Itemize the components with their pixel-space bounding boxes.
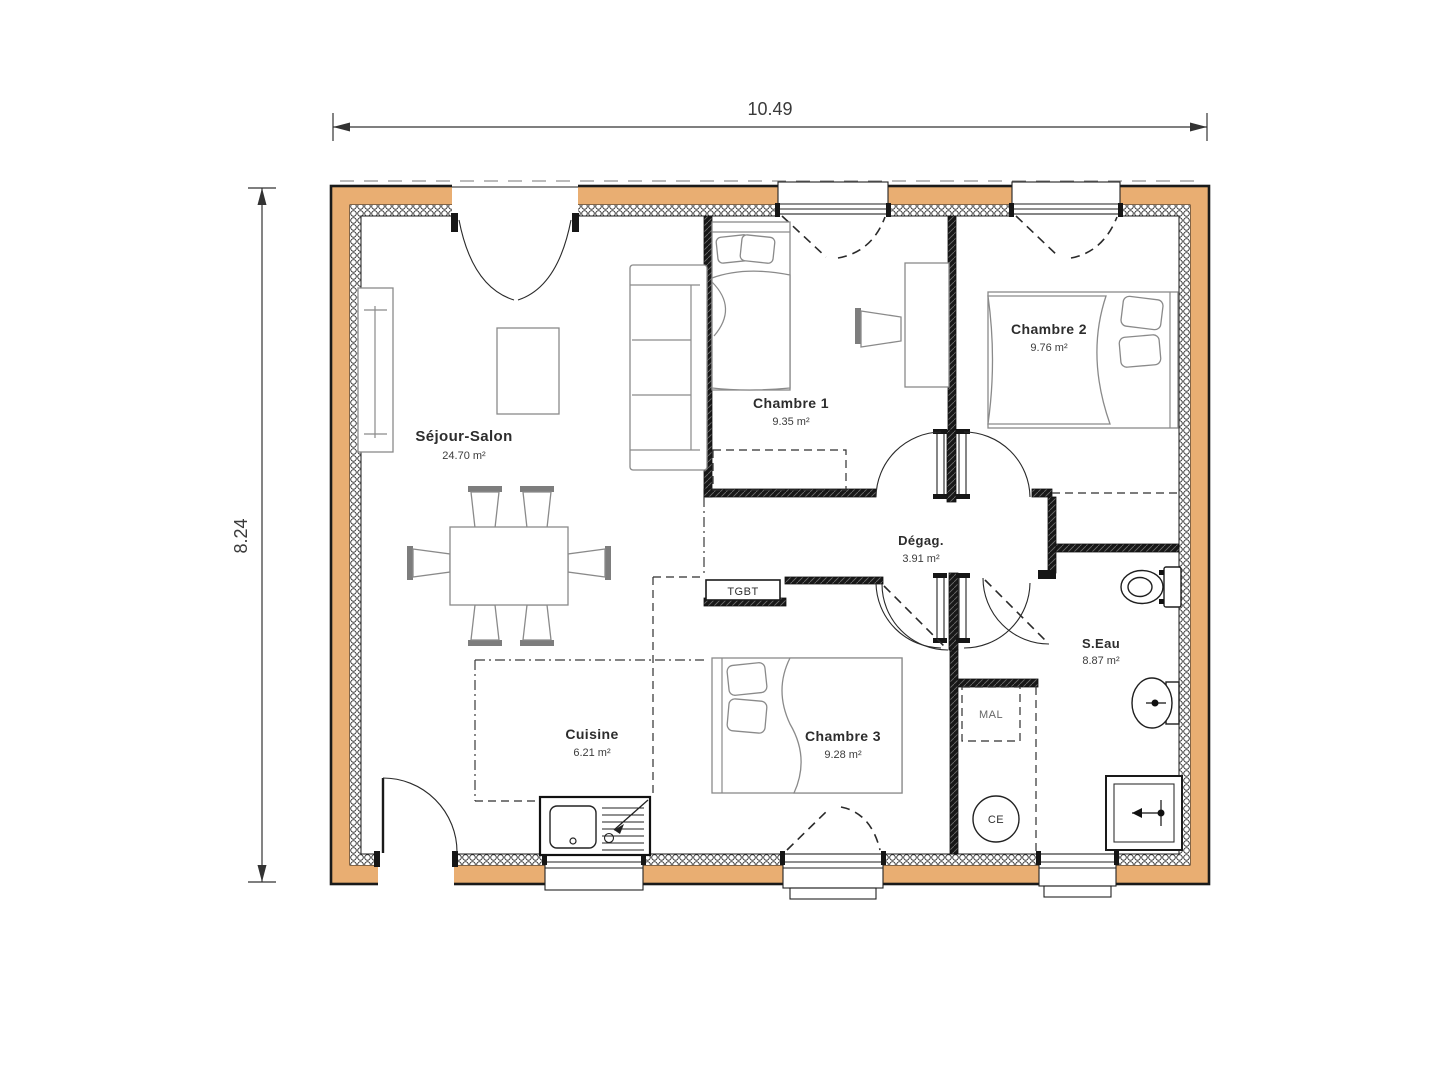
room-name-salle-eau: S.Eau [1082, 636, 1120, 651]
electrical-panel-label: TGBT [727, 586, 758, 598]
chair [468, 605, 502, 646]
dining-table [450, 527, 568, 605]
chair [520, 605, 554, 646]
kitchen-sink-unit [540, 797, 650, 855]
arrow-down-icon [258, 865, 267, 882]
blanket [782, 658, 902, 793]
room-name-sejour: Séjour-Salon [415, 428, 512, 445]
chair [568, 546, 611, 580]
wall-salle-eau-top [1056, 544, 1179, 552]
bed-chambre1 [712, 222, 790, 390]
blanket [988, 296, 1110, 424]
wall-chambre3-salle-eau [950, 650, 958, 854]
chair [520, 486, 554, 528]
bed-chambre3 [712, 658, 902, 793]
washing-machine: MAL [962, 687, 1020, 741]
washing-machine-label: MAL [979, 709, 1003, 721]
exterior-step [1044, 886, 1111, 897]
room-name-chambre2: Chambre 2 [1011, 321, 1087, 337]
room-name-degag: Dégag. [898, 533, 944, 548]
water-heater-label: CE [988, 814, 1004, 826]
electrical-panel: TGBT [706, 580, 780, 600]
room-area-cuisine: 6.21 m² [573, 747, 611, 759]
room-area-sejour: 24.70 m² [442, 450, 486, 462]
door-chambre3 [882, 584, 948, 650]
pillow [740, 234, 776, 263]
wall-degag-salle-eau [1048, 497, 1056, 573]
room-name-chambre3: Chambre 3 [805, 728, 881, 744]
dimension-width: 10.49 [333, 99, 1207, 141]
blanket [712, 271, 790, 390]
shower [1106, 776, 1182, 850]
room-name-cuisine: Cuisine [565, 726, 618, 742]
floor-plan-canvas: 10.49 8.24 [0, 0, 1448, 1080]
room-area-salle-eau: 8.87 m² [1082, 655, 1120, 667]
pillow [727, 662, 768, 696]
chair [407, 546, 450, 580]
floor-plan-drawing: 10.49 8.24 [0, 0, 1448, 1080]
desk [905, 263, 949, 387]
wardrobe-chambre1 [713, 450, 846, 490]
exterior-step [790, 888, 876, 899]
sofa [630, 265, 707, 470]
pillow [1119, 334, 1161, 367]
door-salle-eau [983, 578, 1049, 644]
arrow-up-icon [258, 188, 267, 205]
pillow [1120, 296, 1163, 331]
room-name-chambre1: Chambre 1 [753, 395, 829, 411]
pillow [727, 698, 768, 733]
arrow-right-icon [1190, 123, 1207, 132]
chair [468, 486, 502, 528]
bed-chambre2 [988, 292, 1178, 428]
desk-chair [855, 308, 901, 347]
washbasin [1132, 678, 1179, 728]
room-area-chambre2: 9.76 m² [1030, 342, 1068, 354]
dimension-width-label: 10.49 [747, 99, 792, 119]
coffee-table [497, 328, 559, 414]
room-area-chambre1: 9.35 m² [772, 416, 810, 428]
dimension-height: 8.24 [231, 188, 276, 882]
sideboard-radiator [358, 288, 393, 452]
wall-chambre3-top [785, 577, 883, 584]
arrow-left-icon [333, 123, 350, 132]
room-area-chambre3: 9.28 m² [824, 749, 862, 761]
wall-mal-closet [958, 679, 1038, 687]
room-area-degag: 3.91 m² [902, 553, 940, 565]
toilet [1121, 567, 1181, 607]
water-heater: CE [973, 796, 1019, 842]
dimension-height-label: 8.24 [231, 518, 251, 553]
